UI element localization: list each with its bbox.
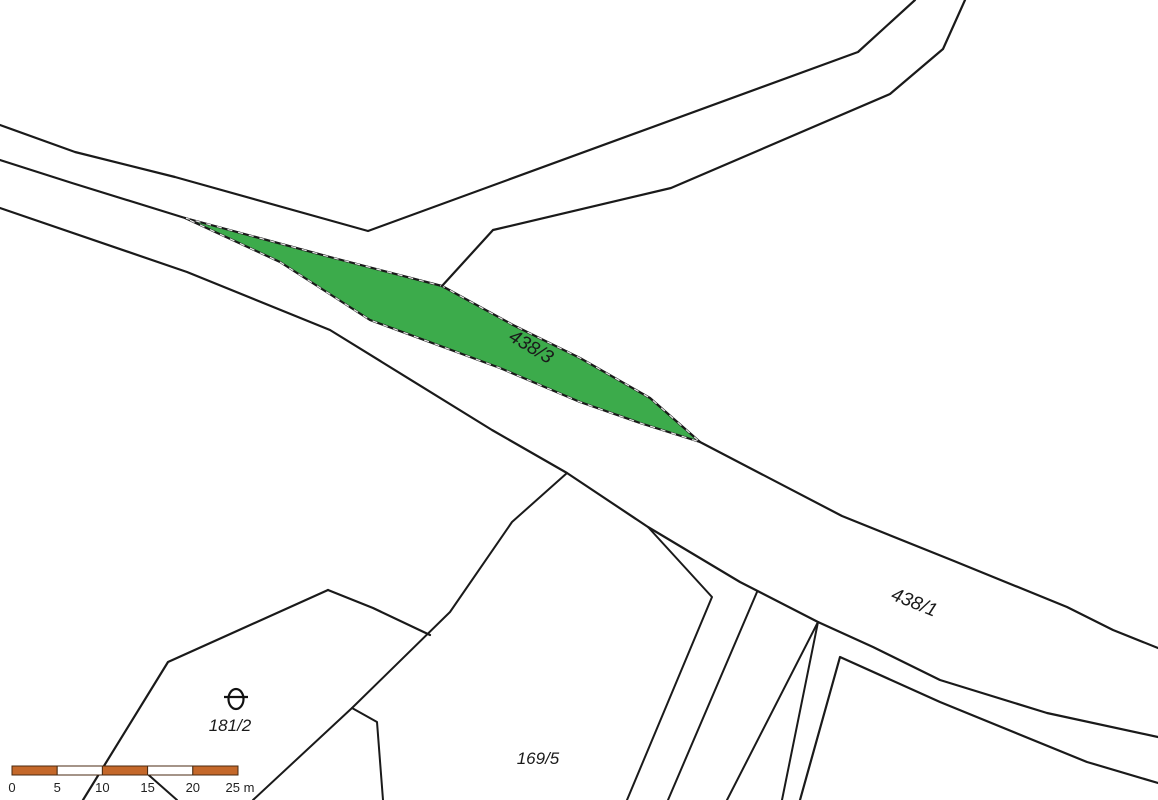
boundary-north — [0, 0, 915, 231]
parcel-label-438-1: 438/1 — [888, 584, 940, 621]
boundary-fan-3 — [727, 622, 818, 800]
theta-orchard-symbol-icon — [224, 689, 248, 709]
scale-label-20: 20 — [186, 780, 200, 795]
boundary-branch-road-right — [442, 0, 965, 286]
parcel-label-181-2: 181/2 — [209, 716, 252, 735]
scale-bar: 0 5 10 15 20 25 m — [8, 766, 254, 795]
scale-bar-segment-5 — [193, 766, 238, 775]
parcel-438-3-area — [185, 218, 700, 442]
map-canvas: 438/3 438/1 181/2 169/5 0 5 10 15 20 25 … — [0, 0, 1158, 800]
boundary-road-lower — [0, 208, 1158, 737]
cadastral-map: 438/3 438/1 181/2 169/5 0 5 10 15 20 25 … — [0, 0, 1158, 800]
boundary-notch — [352, 708, 383, 800]
scale-bar-segment-4 — [148, 766, 193, 775]
parcel-label-169-5: 169/5 — [517, 749, 560, 768]
scale-label-10: 10 — [95, 780, 109, 795]
scale-bar-segment-1 — [12, 766, 57, 775]
scale-bar-segment-2 — [57, 766, 102, 775]
boundary-road-upper-left — [0, 160, 185, 218]
boundary-fan-4 — [782, 622, 818, 800]
scale-label-5: 5 — [54, 780, 61, 795]
scale-bar-segment-3 — [102, 766, 147, 775]
scale-label-0: 0 — [8, 780, 15, 795]
scale-label-15: 15 — [140, 780, 154, 795]
boundary-south-band — [800, 657, 1158, 800]
scale-label-25m: 25 m — [226, 780, 255, 795]
boundary-fan-1 — [627, 527, 712, 800]
boundary-parcel-181-right — [328, 590, 430, 635]
